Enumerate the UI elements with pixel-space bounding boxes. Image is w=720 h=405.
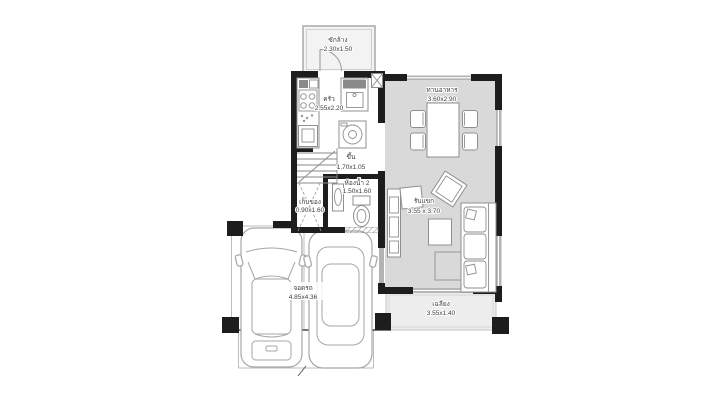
coffee-table bbox=[429, 219, 452, 245]
floor-plan-canvas: ซักล้าง 2.30x1.50 ครัว 2.55x2.20 ทานอาหา… bbox=[0, 0, 720, 405]
stairs-dims: 1.70x1.05 bbox=[337, 164, 366, 171]
kitchen-label: ครัว bbox=[323, 95, 335, 103]
dining-label: ทานอาหาร bbox=[426, 87, 458, 94]
laundry-dims: 2.30x1.50 bbox=[324, 46, 353, 53]
storage-area bbox=[298, 181, 321, 231]
bathroom-dims: 1.50x1.60 bbox=[343, 188, 372, 195]
sofa bbox=[461, 203, 496, 292]
garage-column-bottom-right bbox=[375, 313, 391, 330]
laundry-label: ซักล้าง bbox=[328, 36, 347, 44]
toilet-bowl bbox=[354, 206, 370, 227]
bathroom-label: ห้องน้ำ 2 bbox=[345, 178, 370, 187]
stairs bbox=[297, 148, 337, 185]
bathroom-door-threshold bbox=[346, 227, 378, 233]
dining-dims: 3.60x2.90 bbox=[428, 96, 457, 103]
garage-dims: 4.85x4.36 bbox=[289, 294, 318, 301]
garage-label: จอดรถ bbox=[293, 285, 312, 292]
terrace-label: เฉลียง bbox=[432, 300, 450, 308]
terrace-column bbox=[492, 317, 509, 334]
terrace-dims: 3.55x1.40 bbox=[427, 310, 456, 317]
living-left-opening bbox=[379, 248, 384, 283]
garage-column-bottom-left bbox=[222, 317, 239, 333]
living-dims: 3.55 x 3.70 bbox=[408, 208, 441, 215]
living-label: รับแขก bbox=[414, 197, 434, 205]
garage-column-top-left bbox=[227, 221, 243, 236]
storage-dims: 0.90x1.60 bbox=[296, 207, 325, 214]
storage-label: เก็บของ bbox=[299, 197, 321, 206]
dining-table bbox=[427, 103, 459, 157]
toilet-tank bbox=[353, 196, 370, 205]
floor-plan: ซักล้าง 2.30x1.50 ครัว 2.55x2.20 ทานอาหา… bbox=[0, 0, 720, 405]
stairs-label: ขึ้น bbox=[347, 152, 356, 161]
kitchen-dims: 2.55x2.20 bbox=[315, 105, 344, 112]
